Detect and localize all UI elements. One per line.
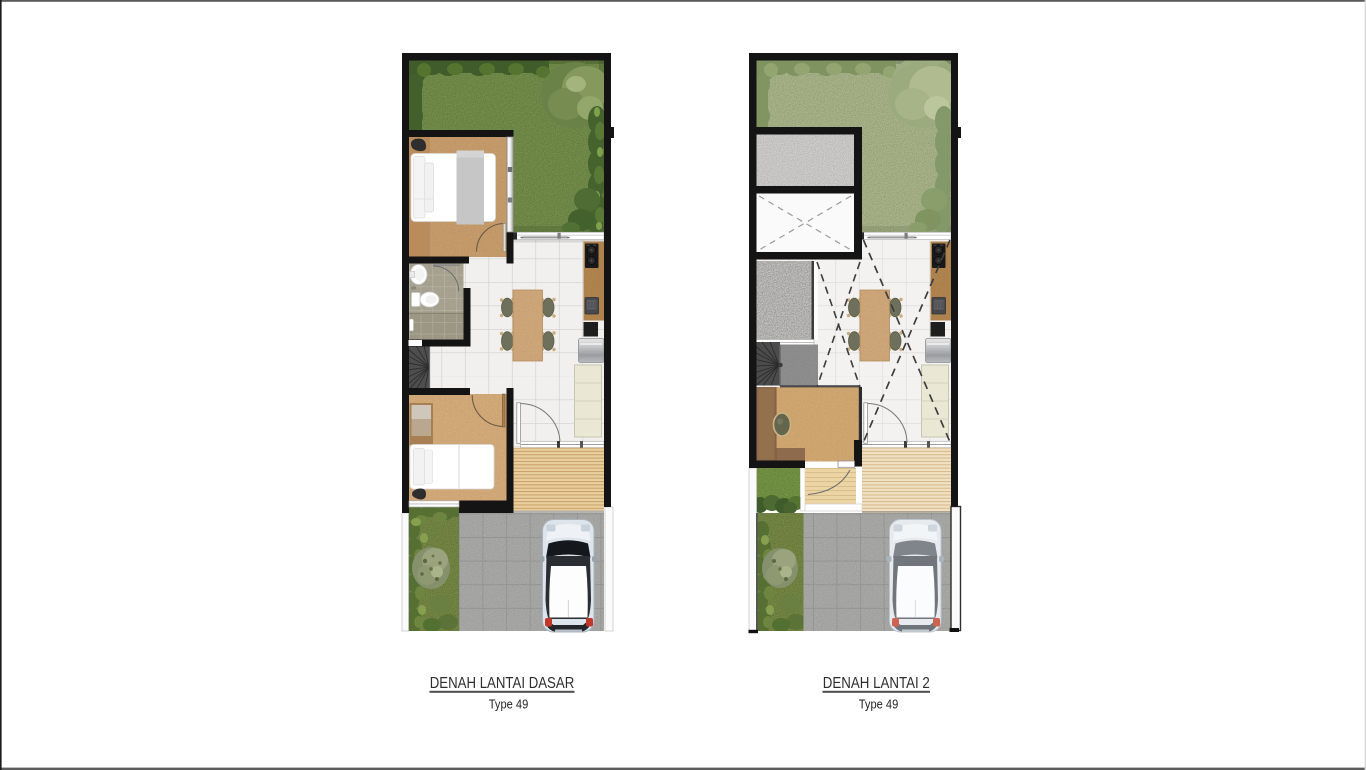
- svg-text:DENAH LANTAI DASAR: DENAH LANTAI DASAR: [430, 675, 575, 692]
- svg-text:Type 49: Type 49: [489, 697, 529, 712]
- svg-text:DENAH LANTAI 2: DENAH LANTAI 2: [823, 675, 930, 692]
- svg-text:Type 49: Type 49: [859, 697, 899, 712]
